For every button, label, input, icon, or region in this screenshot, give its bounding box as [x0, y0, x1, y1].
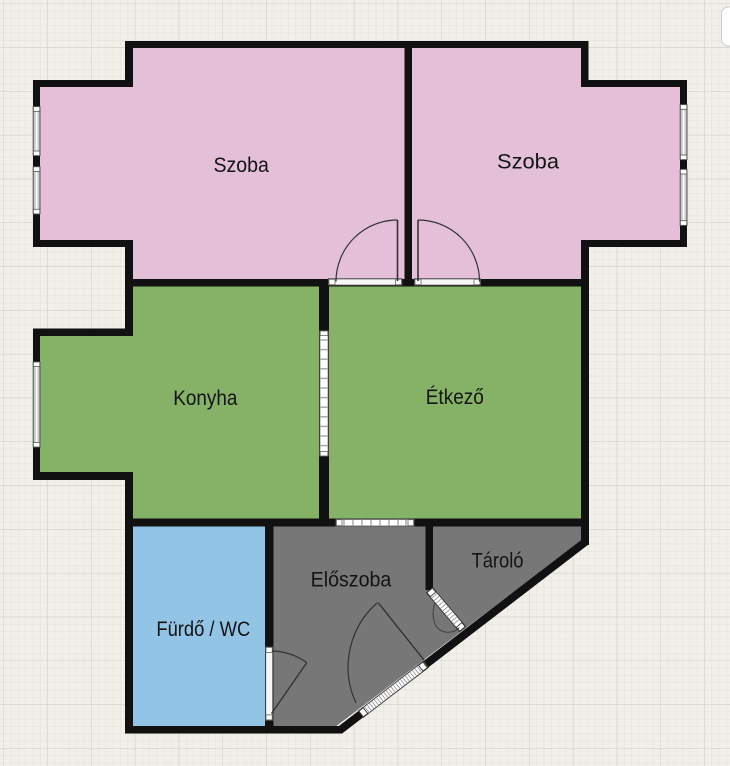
svg-text:Előszoba: Előszoba — [311, 568, 392, 591]
svg-text:Étkező: Étkező — [426, 386, 484, 409]
svg-text:Konyha: Konyha — [173, 387, 237, 410]
svg-text:Tároló: Tároló — [472, 550, 524, 573]
svg-text:Szoba: Szoba — [214, 154, 270, 177]
svg-text:Szoba: Szoba — [497, 150, 559, 173]
svg-text:Fürdő / WC: Fürdő / WC — [156, 618, 250, 641]
